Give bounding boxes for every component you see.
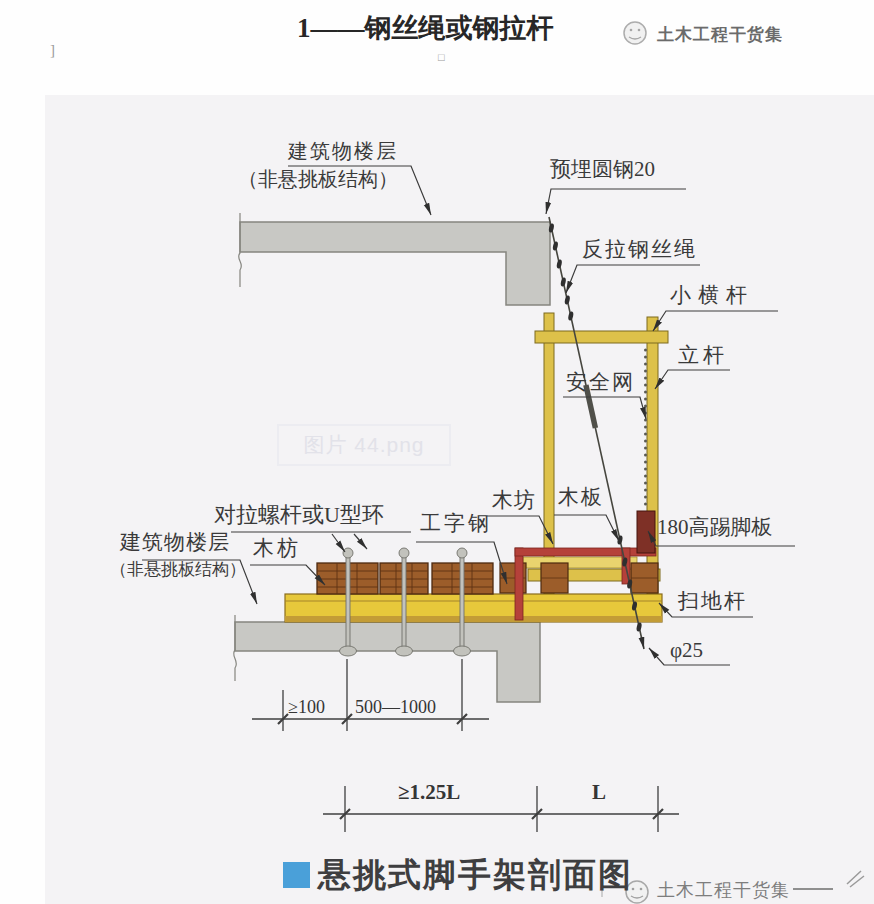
label-wood-plank: 木板 [558, 486, 604, 509]
page-title: 1——钢丝绳或钢拉杆 [297, 10, 554, 46]
label-counter-rope: 反拉钢丝绳 [582, 238, 697, 261]
label-floor-upper-2: （非悬挑板结构） [238, 168, 398, 190]
dim-offset-min: ≥100 [288, 697, 325, 718]
safety-net-dots [644, 349, 647, 506]
dim-bolt-spacing: 500—1000 [355, 697, 436, 718]
label-sweep-bar: 扫地杆 [678, 590, 747, 613]
dim-anchor-span: ≥1.25L [398, 780, 460, 805]
label-floor-upper-1: 建筑物楼层 [288, 140, 398, 162]
label-tie-bolt: 对拉螺杆或U型环 [214, 503, 384, 527]
kickboard-shape [637, 511, 655, 553]
label-embedded-steel: 预埋圆钢20 [550, 158, 655, 181]
dim-scaffold-span: L [592, 780, 606, 805]
label-small-crossbar: 小横杆 [670, 284, 754, 307]
label-safety-net: 安全网 [566, 371, 635, 394]
top-crossbar [535, 331, 668, 343]
label-i-beam: 工字钢 [420, 512, 492, 535]
figure-caption: 悬挑式脚手架剖面图 [318, 853, 633, 898]
label-upright: 立杆 [678, 344, 728, 367]
label-floor-lower-2: （非悬挑板结构） [110, 561, 246, 580]
bracket-fragment: ] [50, 42, 55, 59]
label-phi25: φ25 [670, 639, 703, 662]
brand-logo-icon-top [624, 22, 646, 44]
label-floor-lower-1: 建筑物楼层 [120, 531, 230, 554]
label-kickboard: 180高踢脚板 [657, 516, 773, 539]
label-wood-fang-left: 木枋 [253, 537, 301, 560]
file-name-watermark: 图片 44.png [277, 424, 451, 466]
deck-plank-strip [523, 557, 637, 568]
watermark-top: 土木工程干货集 [657, 23, 783, 46]
watermark-bottom: 土木工程干货集 [657, 878, 790, 902]
caption-bullet-square [283, 862, 310, 888]
square-fragment: □ [438, 51, 445, 63]
page: 1——钢丝绳或钢拉杆 ] □ 土木工程干货集 图片 44.png 建筑物楼层 （… [0, 0, 874, 904]
label-wood-fang-right: 木坊 [492, 489, 536, 512]
i-beam-shape [285, 594, 662, 622]
